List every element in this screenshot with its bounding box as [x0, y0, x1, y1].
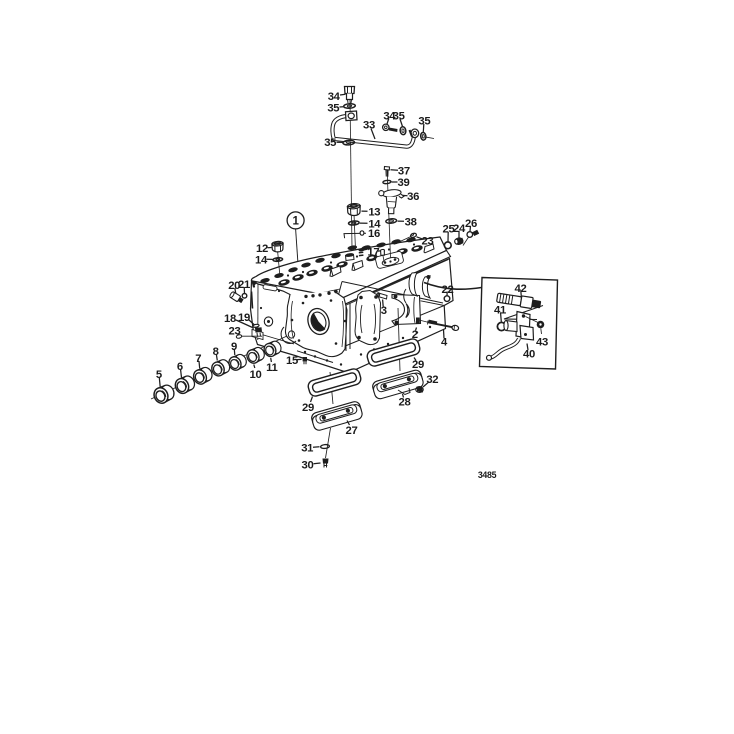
svg-text:11: 11: [266, 362, 277, 374]
svg-text:15: 15: [286, 355, 298, 367]
svg-text:3: 3: [381, 305, 387, 317]
svg-text:39: 39: [398, 177, 410, 189]
svg-text:8: 8: [213, 346, 219, 358]
svg-text:18: 18: [224, 313, 236, 325]
svg-text:35: 35: [418, 116, 430, 128]
svg-text:40: 40: [523, 348, 535, 360]
svg-text:16: 16: [368, 228, 380, 240]
svg-text:7: 7: [195, 353, 201, 365]
svg-text:14: 14: [255, 254, 268, 266]
svg-text:38: 38: [405, 217, 417, 229]
svg-text:43: 43: [536, 337, 548, 349]
svg-text:27: 27: [346, 425, 358, 437]
svg-text:29: 29: [412, 359, 424, 371]
svg-text:13: 13: [368, 207, 380, 219]
svg-text:37: 37: [398, 166, 410, 178]
svg-text:32: 32: [426, 374, 438, 386]
svg-text:35: 35: [324, 137, 336, 149]
svg-text:12: 12: [256, 243, 268, 255]
svg-text:41: 41: [494, 304, 506, 316]
svg-text:34: 34: [328, 91, 341, 103]
svg-text:28: 28: [399, 396, 411, 408]
svg-text:10: 10: [250, 369, 262, 381]
svg-text:36: 36: [407, 191, 419, 203]
svg-text:19: 19: [238, 312, 250, 324]
svg-text:35: 35: [393, 111, 405, 123]
svg-text:2: 2: [412, 329, 418, 341]
svg-text:35: 35: [327, 103, 339, 115]
svg-text:3485: 3485: [478, 470, 497, 480]
svg-text:29: 29: [302, 402, 314, 414]
svg-text:6: 6: [177, 361, 183, 373]
svg-text:17: 17: [367, 246, 379, 258]
svg-text:33: 33: [363, 120, 375, 132]
svg-text:1: 1: [293, 216, 300, 228]
svg-text:26: 26: [465, 218, 477, 230]
svg-text:30: 30: [302, 459, 314, 471]
svg-text:23: 23: [422, 236, 434, 248]
svg-text:31: 31: [301, 443, 313, 455]
svg-text:23: 23: [229, 326, 241, 338]
